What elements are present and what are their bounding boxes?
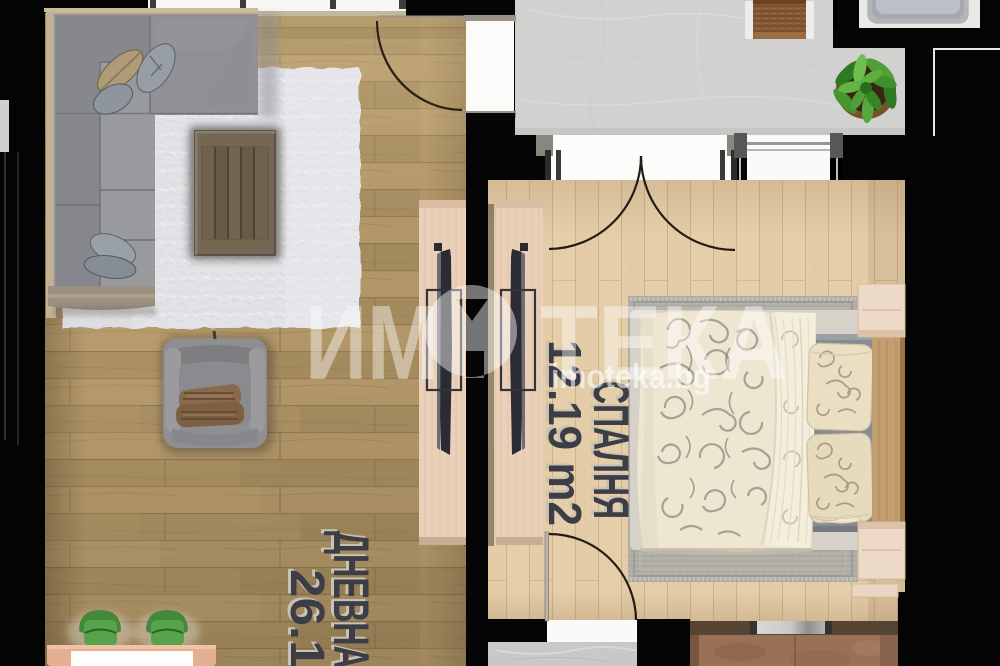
svg-text:imoteka.bg: imoteka.bg xyxy=(551,358,711,396)
svg-text:ИМ: ИМ xyxy=(305,284,439,402)
svg-text:26.18: 26.18 xyxy=(280,569,333,666)
